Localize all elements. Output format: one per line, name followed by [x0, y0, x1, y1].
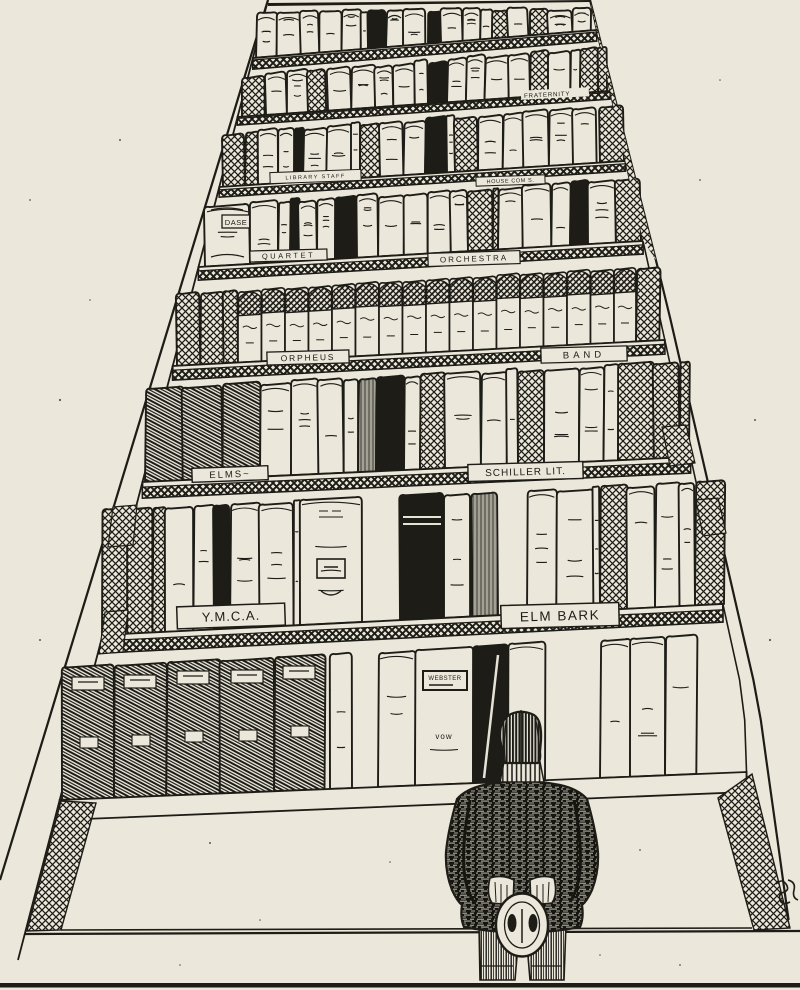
svg-text:ELMS~: ELMS~ — [209, 469, 251, 481]
svg-text:ORPHEUS: ORPHEUS — [281, 352, 336, 363]
svg-text:vow: vow — [435, 732, 452, 741]
svg-text:BAND: BAND — [563, 349, 606, 361]
svg-text:ELM BARK: ELM BARK — [520, 607, 601, 624]
svg-text:DASE: DASE — [225, 218, 247, 227]
svg-text:Y.M.C.A.: Y.M.C.A. — [202, 608, 261, 625]
svg-text:QUARTET: QUARTET — [262, 251, 315, 261]
svg-text:WEBSTER: WEBSTER — [428, 676, 461, 682]
svg-text:SCHILLER LIT.: SCHILLER LIT. — [485, 466, 566, 479]
